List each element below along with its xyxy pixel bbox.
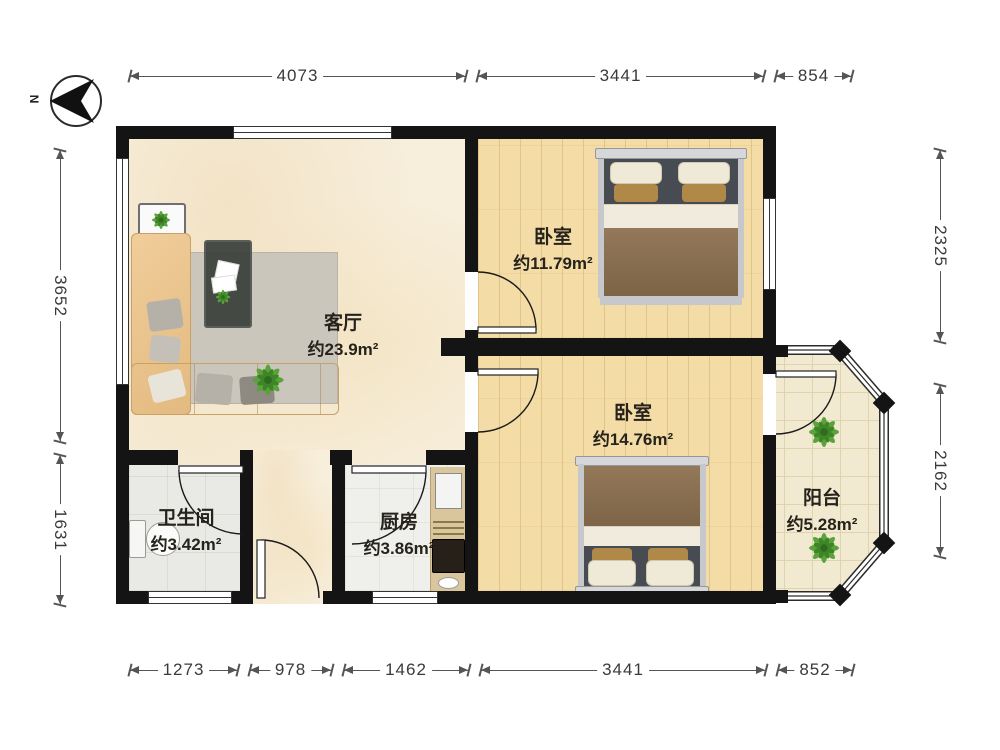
- wall: [438, 591, 776, 604]
- window: [116, 158, 129, 385]
- balcony-bay: [776, 340, 895, 607]
- sofa-pillow: [195, 372, 233, 405]
- room-name: 卧室: [534, 225, 572, 252]
- cooktop-icon: [432, 539, 465, 573]
- wall: [441, 338, 776, 356]
- room-area: 约14.76m²: [593, 427, 673, 451]
- wall: [763, 290, 776, 374]
- window: [233, 126, 392, 139]
- window: [372, 591, 438, 604]
- table-paper: [211, 274, 237, 293]
- dim-top-1: 4073: [130, 68, 465, 84]
- room-label-bedroom-top: 卧室 约11.79m²: [513, 225, 592, 275]
- wall: [426, 450, 478, 465]
- dim-bottom-4: 3441: [481, 662, 765, 678]
- wall: [116, 126, 129, 158]
- room-label-living: 客厅 约23.9m²: [308, 311, 379, 361]
- sofa-pillow: [146, 298, 184, 332]
- double-bed-top: [598, 148, 744, 306]
- dim-bottom-5: 852: [778, 662, 852, 678]
- wall: [240, 450, 253, 604]
- wall: [116, 126, 233, 139]
- wall: [763, 435, 776, 604]
- vent-icon: [433, 519, 464, 535]
- room-area: 约23.9m²: [308, 337, 379, 361]
- dim-right-1: 2325: [932, 150, 948, 341]
- north-arrow-icon: [50, 76, 101, 126]
- room-name: 阳台: [803, 486, 841, 513]
- wall: [116, 450, 178, 465]
- kitchen-counter: [430, 467, 465, 591]
- dim-top-3: 854: [776, 68, 851, 84]
- wall: [465, 126, 478, 272]
- room-label-bedroom-bottom: 卧室 约14.76m²: [593, 401, 673, 451]
- room-area: 约5.28m²: [787, 512, 858, 536]
- north-label: N: [27, 95, 41, 104]
- floor-plan: N 客厅 约23.9m² 卧室 约11.79m² 卧室 约14.76m² 卫生间…: [0, 0, 1000, 750]
- wall: [392, 126, 776, 139]
- dim-bottom-3: 1462: [344, 662, 468, 678]
- sink-icon: [438, 577, 459, 589]
- dim-left-1: 3652: [52, 150, 68, 441]
- wall: [332, 450, 345, 604]
- wall: [116, 591, 148, 604]
- room-name: 卫生间: [157, 506, 214, 533]
- wall: [763, 126, 776, 198]
- room-area: 约3.86m²: [364, 536, 435, 560]
- room-area: 约3.42m²: [151, 532, 222, 556]
- hallway-floor: [253, 450, 332, 604]
- room-label-kitchen: 厨房 约3.86m²: [364, 510, 435, 560]
- room-name: 卧室: [614, 401, 652, 428]
- wall: [116, 385, 129, 604]
- sofa-pillow: [149, 335, 182, 364]
- fridge-icon: [435, 473, 462, 509]
- room-name: 厨房: [380, 510, 418, 537]
- dim-left-2: 1631: [52, 455, 68, 604]
- dim-bottom-1: 1273: [130, 662, 237, 678]
- room-label-bathroom: 卫生间 约3.42m²: [151, 506, 222, 556]
- plant-icon: [809, 533, 839, 563]
- dim-top-2: 3441: [478, 68, 763, 84]
- wall: [323, 591, 372, 604]
- sofa-pillow: [239, 375, 275, 405]
- window: [148, 591, 232, 604]
- window: [763, 198, 776, 290]
- plant-icon: [809, 417, 839, 447]
- dim-bottom-2: 978: [250, 662, 331, 678]
- dim-right-2: 2162: [932, 385, 948, 556]
- room-label-balcony: 阳台 约5.28m²: [787, 486, 858, 536]
- room-name: 客厅: [324, 311, 362, 338]
- double-bed-bottom: [578, 456, 706, 598]
- room-area: 约11.79m²: [513, 251, 592, 275]
